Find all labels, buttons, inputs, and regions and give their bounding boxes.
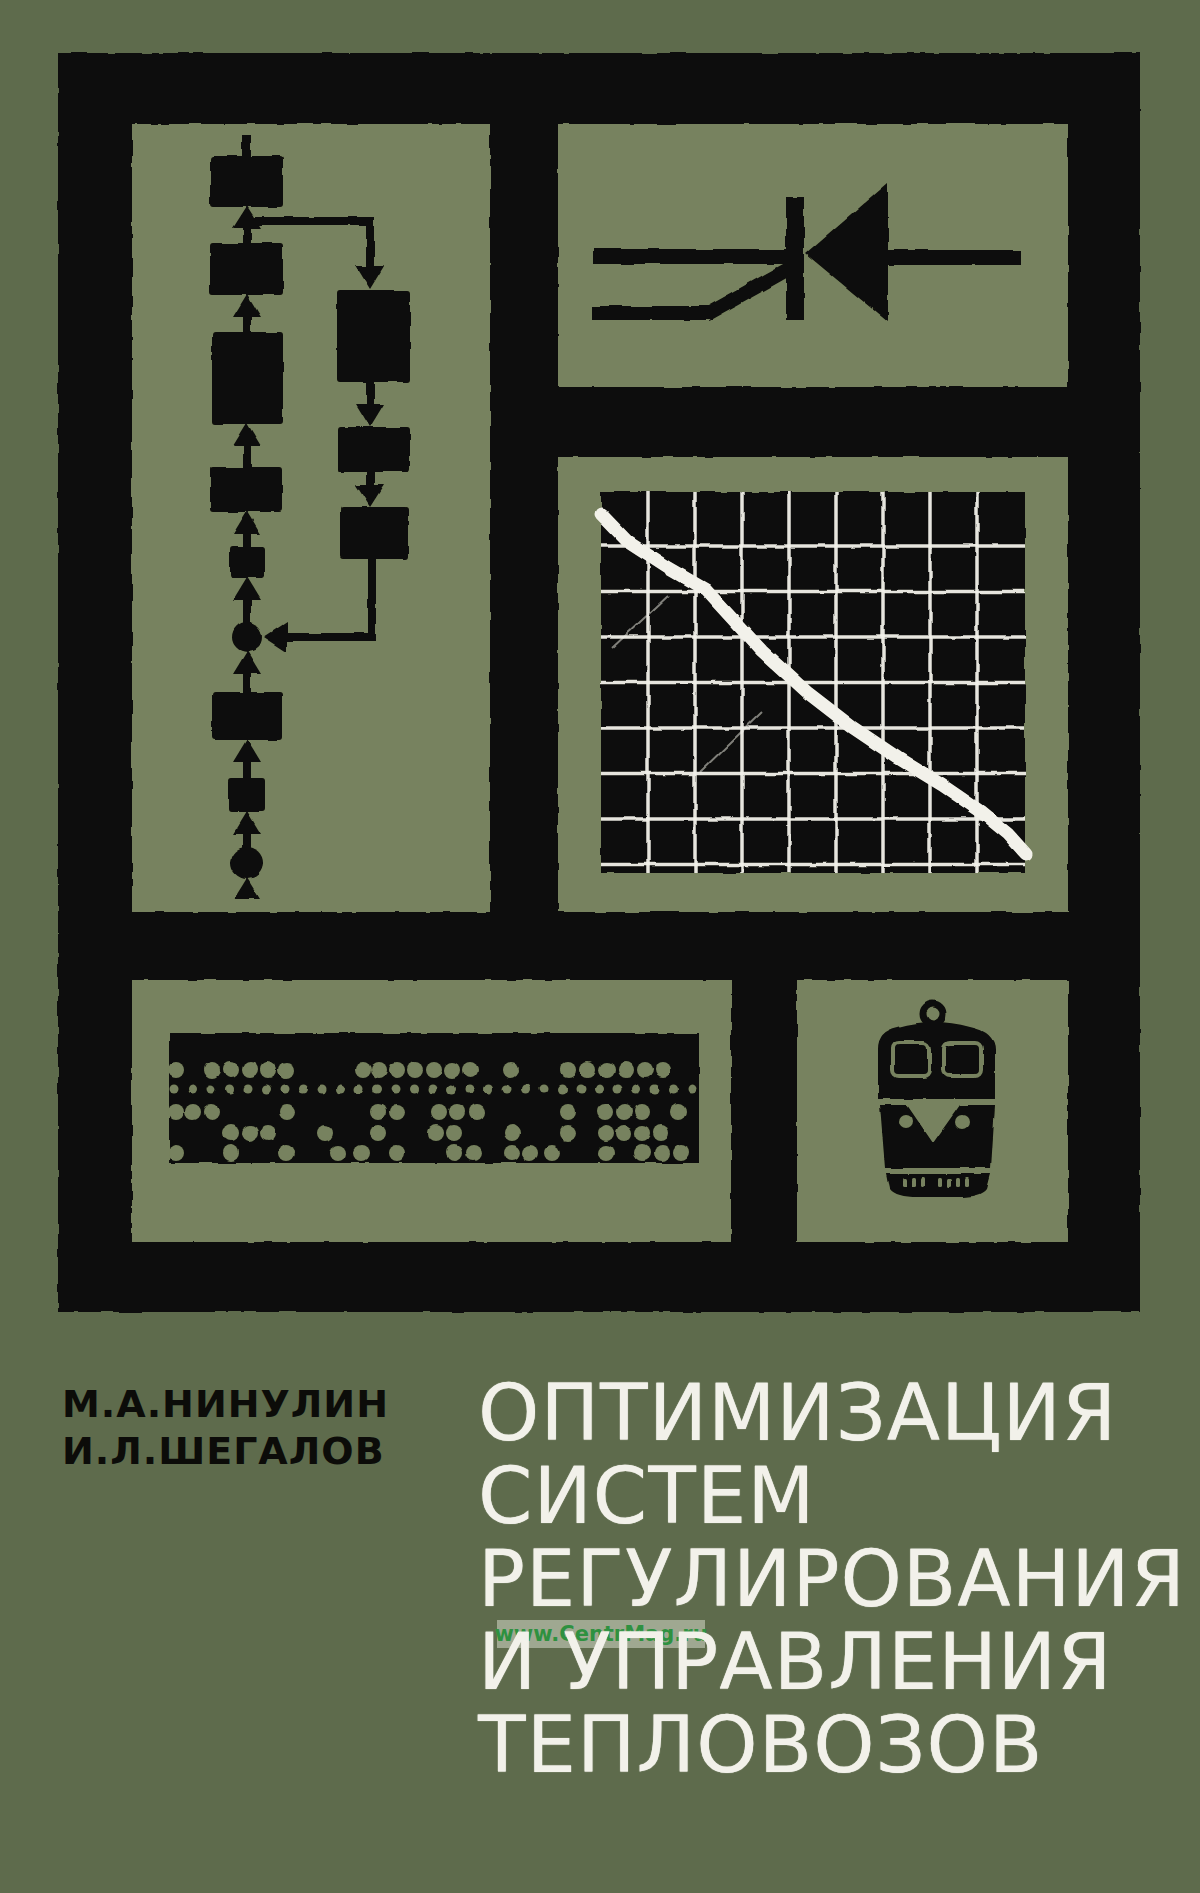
book-cover: М.А.НИНУЛИН И.Л.ШЕГАЛОВ www.CentrMag.ru … bbox=[0, 0, 1200, 1893]
oscilloscope-screen-icon bbox=[601, 492, 1026, 873]
title-line-5: ТЕПЛОВОЗОВ bbox=[478, 1704, 1186, 1787]
title-line-4: И УПРАВЛЕНИЯ bbox=[478, 1621, 1186, 1704]
locomotive-light-right bbox=[955, 1115, 969, 1129]
title-line-2: СИСТЕМ bbox=[478, 1455, 1186, 1538]
locomotive-light-left bbox=[899, 1115, 913, 1129]
title-line-1: ОПТИМИЗАЦИЯ bbox=[478, 1372, 1186, 1455]
author-line-1: М.А.НИНУЛИН bbox=[62, 1381, 389, 1428]
author-names: М.А.НИНУЛИН И.Л.ШЕГАЛОВ bbox=[62, 1381, 389, 1475]
punched-tape-icon bbox=[168, 1033, 699, 1163]
punched-tape-body bbox=[169, 1033, 699, 1163]
author-line-2: И.Л.ШЕГАЛОВ bbox=[62, 1428, 389, 1475]
book-title: ОПТИМИЗАЦИЯ СИСТЕМ РЕГУЛИРОВАНИЯ И УПРАВ… bbox=[478, 1372, 1186, 1787]
title-line-3: РЕГУЛИРОВАНИЯ bbox=[478, 1538, 1186, 1621]
locomotive-panel bbox=[797, 980, 1068, 1242]
flowchart-panel bbox=[132, 124, 490, 912]
locomotive-cab bbox=[878, 1022, 995, 1099]
